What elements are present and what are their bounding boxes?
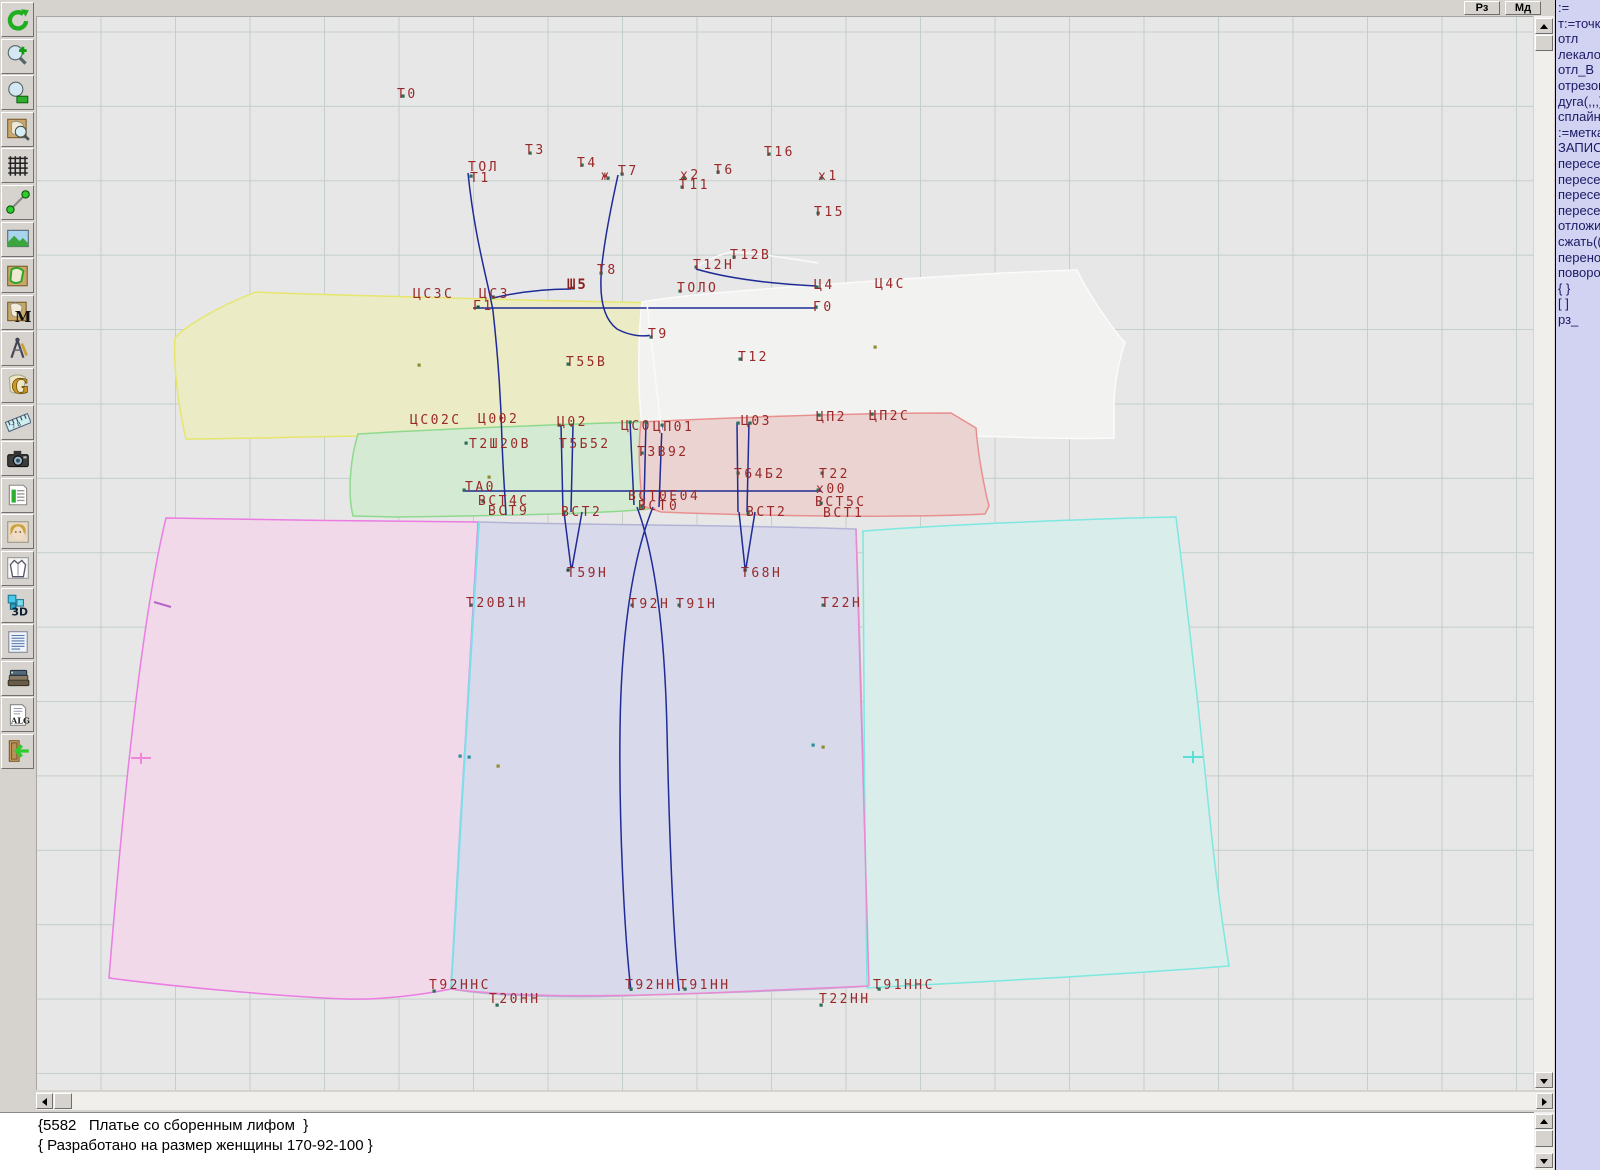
point-label: Т64Б2 <box>734 467 786 482</box>
command-item[interactable]: отложит <box>1556 218 1600 234</box>
point-label: ВСТ2 <box>746 505 787 520</box>
point-label: ВСТ1 <box>823 506 864 521</box>
point-label: Т0 <box>397 87 418 102</box>
point-label: ж <box>601 169 611 184</box>
model-photo-icon <box>5 519 31 545</box>
vertical-scrollbar[interactable] <box>1534 16 1554 1090</box>
command-item[interactable]: сжать(() <box>1556 234 1600 250</box>
drawing-canvas[interactable]: Т0Т3Т4ТОЛТ1жТ7х2Т11Т6Т16х1Т15Т12ВТ12НТ8Ш… <box>36 16 1533 1090</box>
point-marker[interactable] <box>418 364 421 367</box>
alg-document-button[interactable]: ALG <box>1 697 34 732</box>
point-label: Ц4С <box>875 277 906 292</box>
image-button[interactable] <box>1 222 34 257</box>
command-item[interactable]: [ ] <box>1556 296 1600 312</box>
books-icon <box>5 665 31 691</box>
grid-button[interactable] <box>1 148 34 183</box>
point-marker[interactable] <box>822 746 825 749</box>
command-item[interactable]: т:=точка <box>1556 16 1600 32</box>
pattern-piece-button[interactable] <box>1 258 34 293</box>
zoom-out-button[interactable] <box>1 75 34 110</box>
scroll-up-button[interactable] <box>1535 18 1553 34</box>
camera-button[interactable] <box>1 441 34 476</box>
point-label: Т12Н <box>693 258 734 273</box>
command-item[interactable]: := <box>1556 0 1600 16</box>
pattern-piece-skirt-right-cyan[interactable] <box>863 517 1229 988</box>
scroll-down-button[interactable] <box>1535 1072 1553 1088</box>
description-line-1: {5582 Платье со сборенным лифом } <box>38 1116 1534 1136</box>
command-list-panel: :=т:=точкаотллекалоотл_Вотрезокдуга(,,,)… <box>1555 0 1600 1170</box>
textarea-scrollbar[interactable] <box>1534 1112 1554 1170</box>
point-label: ТЗВ92 <box>637 445 689 460</box>
point-marker[interactable] <box>737 422 740 425</box>
command-item[interactable]: пересеч <box>1556 156 1600 172</box>
point-label: ЦС0 <box>621 419 652 434</box>
pattern-m-button[interactable]: M <box>1 295 34 330</box>
text-list-icon <box>5 629 31 655</box>
alg-document-icon: ALG <box>5 702 31 728</box>
point-label: Т92Н <box>629 597 670 612</box>
point-label: Ц002 <box>478 412 519 427</box>
svg-text:ALG: ALG <box>9 715 29 725</box>
command-item[interactable]: рз_ <box>1556 312 1600 328</box>
command-item[interactable]: дуга(,,,) <box>1556 94 1600 110</box>
size-table-button[interactable] <box>1 478 34 513</box>
zoom-in-button[interactable] <box>1 39 34 74</box>
size-table-icon <box>5 482 31 508</box>
point-label: Т55В <box>566 355 607 370</box>
horizontal-scroll-thumb[interactable] <box>54 1093 72 1109</box>
cad-application-window: Рз Мд MG7 83DALG Т0Т3Т4ТОЛТ1жТ7х2Т11Т6Т1… <box>0 0 1600 1170</box>
ruler-icon: 7 8 <box>5 409 31 435</box>
pattern-piece-icon <box>5 263 31 289</box>
point-label: ВСТ2 <box>561 505 602 520</box>
point-label: Т22НН <box>819 992 871 1007</box>
point-label: Ц02 <box>557 415 588 430</box>
md-mode-button[interactable]: Мд <box>1505 1 1541 15</box>
point-label: Т59Н <box>567 566 608 581</box>
command-item[interactable]: { } <box>1556 281 1600 297</box>
point-marker[interactable] <box>488 476 491 479</box>
svg-text:M: M <box>14 308 30 325</box>
drafting-compass-icon <box>5 336 31 362</box>
garment-sketch-button[interactable] <box>1 551 34 586</box>
left-arrow-icon <box>42 1098 47 1106</box>
command-item[interactable]: пересеч <box>1556 203 1600 219</box>
point-label: ЦС02С <box>410 413 462 428</box>
point-label: Г1 <box>473 299 494 314</box>
point-label: Т92ННС <box>429 978 491 993</box>
point-label: Т4 <box>577 156 598 171</box>
description-line-2: { Разработано на размер женщины 170-92-1… <box>38 1136 1534 1156</box>
zoom-out-icon <box>5 80 31 106</box>
command-item[interactable]: :=метка <box>1556 125 1600 141</box>
letter-g-icon: G <box>5 372 31 398</box>
point-marker[interactable] <box>497 765 500 768</box>
grid-icon <box>5 153 31 179</box>
view-3d-icon: 3D <box>5 592 31 618</box>
measure-line-button[interactable] <box>1 185 34 220</box>
down-arrow-icon <box>1540 1079 1548 1084</box>
point-label: ЦСЗС <box>413 287 454 302</box>
point-label: Т15 <box>814 205 845 220</box>
point-label: Т2Ш20В <box>469 437 531 452</box>
model-photo-button[interactable] <box>1 514 34 549</box>
point-label: Г0 <box>813 300 834 315</box>
point-label: Т20В1Н <box>466 596 528 611</box>
point-label: Т92НН <box>625 978 677 993</box>
description-text-area[interactable]: {5582 Платье со сборенным лифом } { Разр… <box>0 1112 1534 1170</box>
scroll-left-button[interactable] <box>36 1093 53 1109</box>
point-label: Т22 <box>819 467 850 482</box>
point-label: Т1 <box>470 171 491 186</box>
pattern-piece-skirt-left-magenta[interactable] <box>109 518 478 999</box>
point-label: х1 <box>818 169 839 184</box>
ruler-button[interactable]: 7 8 <box>1 405 34 440</box>
left-toolbar: MG7 83DALG <box>0 0 36 1090</box>
textarea-scroll-up-button[interactable] <box>1535 1114 1553 1129</box>
point-label: Ц4 <box>814 278 835 293</box>
drafting-compass-button[interactable] <box>1 331 34 366</box>
textarea-scroll-thumb[interactable] <box>1535 1130 1553 1147</box>
refresh-icon <box>5 7 31 33</box>
point-label: Т7 <box>618 164 639 179</box>
letter-g-button[interactable]: G <box>1 368 34 403</box>
point-label: Т12 <box>738 350 769 365</box>
point-label: Т8 <box>597 263 618 278</box>
point-label: ЦП2С <box>869 409 910 424</box>
point-label: Т16 <box>764 145 795 160</box>
point-label: Т91Н <box>676 597 717 612</box>
horizontal-scrollbar[interactable] <box>36 1092 1554 1110</box>
image-icon <box>5 226 31 252</box>
point-marker[interactable] <box>459 755 462 758</box>
point-label: Ц03 <box>741 414 772 429</box>
command-item[interactable]: лекало <box>1556 47 1600 63</box>
point-marker[interactable] <box>812 744 815 747</box>
point-label: Т5Б52 <box>559 437 611 452</box>
vertical-scroll-thumb[interactable] <box>1535 35 1553 51</box>
svg-text:3D: 3D <box>11 605 28 618</box>
refresh-button[interactable] <box>1 2 34 37</box>
point-label: Т6 <box>714 163 735 178</box>
exit-button[interactable] <box>1 734 34 769</box>
point-label: Т68Н <box>741 566 782 581</box>
command-item[interactable]: перенос <box>1556 250 1600 266</box>
up-arrow-icon <box>1540 1119 1548 1124</box>
point-label: Т12В <box>730 248 771 263</box>
textarea-scroll-down-button[interactable] <box>1535 1153 1553 1168</box>
command-item[interactable]: сплайн_ <box>1556 109 1600 125</box>
point-label: Т9 <box>648 327 669 342</box>
command-item[interactable]: поворот <box>1556 265 1600 281</box>
command-item[interactable]: отл_В <box>1556 62 1600 78</box>
point-label: Т3 <box>525 143 546 158</box>
right-arrow-icon <box>1542 1098 1547 1106</box>
zoom-in-icon <box>5 43 31 69</box>
up-arrow-icon <box>1540 24 1548 29</box>
top-bar: Рз Мд <box>0 0 1600 16</box>
piece-preview-button[interactable] <box>1 112 34 147</box>
command-item[interactable]: отл <box>1556 31 1600 47</box>
pattern-m-icon: M <box>5 299 31 325</box>
point-label: ВСТ0 <box>638 499 679 514</box>
measure-line-icon <box>5 189 31 215</box>
scroll-right-button[interactable] <box>1536 1093 1553 1109</box>
point-label: Т20НН <box>489 992 541 1007</box>
point-label: Т11 <box>679 178 710 193</box>
down-arrow-icon <box>1540 1159 1548 1164</box>
command-item[interactable]: пересеч <box>1556 187 1600 203</box>
command-item[interactable]: пересеч <box>1556 172 1600 188</box>
point-marker[interactable] <box>874 346 877 349</box>
point-label: Т91НН <box>679 978 731 993</box>
svg-text:G: G <box>11 375 29 398</box>
rz-mode-button[interactable]: Рз <box>1464 1 1500 15</box>
point-label: Т22Н <box>821 596 862 611</box>
camera-icon <box>5 446 31 472</box>
point-label: ЦП01 <box>653 420 694 435</box>
point-label: ТОЛО <box>677 281 718 296</box>
text-list-button[interactable] <box>1 624 34 659</box>
books-button[interactable] <box>1 661 34 696</box>
view-3d-button[interactable]: 3D <box>1 588 34 623</box>
exit-icon <box>5 738 31 764</box>
point-label: ВСТ9 <box>488 504 529 519</box>
piece-preview-icon <box>5 116 31 142</box>
point-label: ЦП2 <box>816 410 847 425</box>
point-label: ТА0 <box>465 480 496 495</box>
point-marker[interactable] <box>468 756 471 759</box>
point-marker[interactable] <box>465 442 468 445</box>
point-label: Ш5 <box>567 277 588 293</box>
point-label: Т91ННС <box>873 978 935 993</box>
command-item[interactable]: ЗАПИСА <box>1556 140 1600 156</box>
pattern-piece-skirt-center-blue[interactable] <box>451 522 869 997</box>
command-item[interactable]: отрезок <box>1556 78 1600 94</box>
garment-sketch-icon <box>5 555 31 581</box>
